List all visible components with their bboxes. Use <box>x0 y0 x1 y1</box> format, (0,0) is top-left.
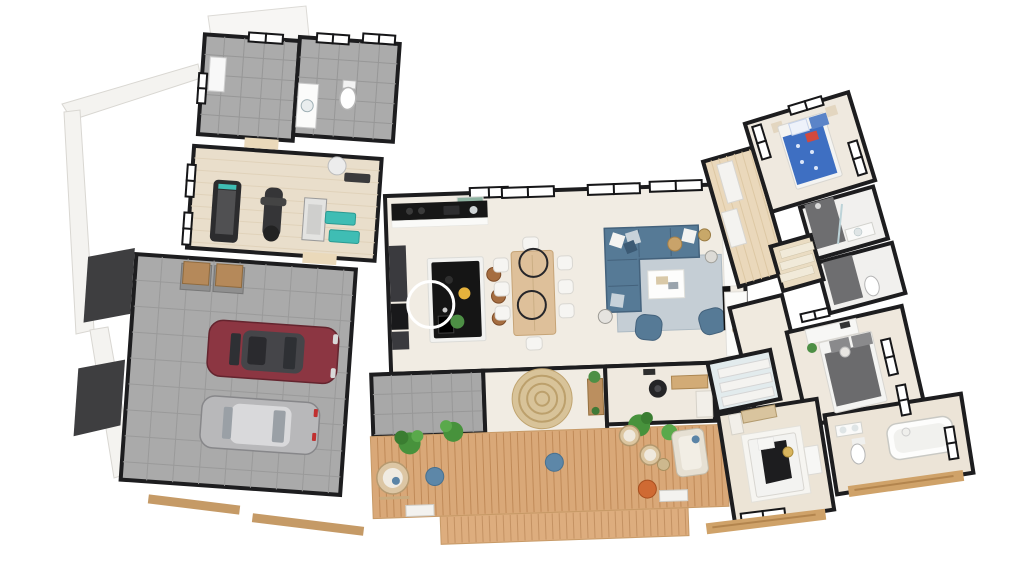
step-bench-1 <box>325 211 356 225</box>
silver-car-taillight-2 <box>312 433 317 441</box>
bath-sink-1 <box>840 427 847 434</box>
gym-window-1-mullion <box>186 180 196 181</box>
planter-box-1 <box>406 505 434 517</box>
gym-bench <box>344 172 371 183</box>
office-desk <box>671 375 707 389</box>
bed1-dot-1 <box>796 144 800 148</box>
cable-rack-pad <box>306 204 322 235</box>
garage-cabinet-1 <box>182 261 209 285</box>
bath-window-top-1-mullion <box>333 33 334 44</box>
hanging-chair-stand <box>380 497 410 498</box>
mudroom-floor <box>371 371 485 437</box>
sink-top <box>301 99 314 112</box>
red-suv-headlight-1 <box>333 334 339 344</box>
planter-box-2 <box>659 490 687 502</box>
bed2-pendant-light <box>840 347 850 357</box>
garage-door-1 <box>84 245 135 326</box>
dining-chair-6 <box>559 304 574 319</box>
side-table-2 <box>705 251 717 263</box>
bed3-pillow <box>757 437 775 450</box>
dining-chair-head-2 <box>526 337 542 351</box>
bed3-pendant-light <box>783 447 793 457</box>
step-bench-2 <box>329 230 360 244</box>
floor-lamp <box>698 229 710 241</box>
armchair-1 <box>634 314 662 342</box>
dining-chair-5 <box>558 280 573 295</box>
dining-chair-3 <box>495 306 510 321</box>
decor-basket <box>668 237 682 251</box>
bed1-dot-4 <box>814 166 818 170</box>
floor-plan-canvas <box>0 0 1024 576</box>
fridge-tall-unit <box>389 245 408 302</box>
oven-stack <box>391 303 409 330</box>
shower1-sink <box>854 228 862 236</box>
treadmill-belt <box>215 190 236 235</box>
bedroom2-plant <box>807 343 817 353</box>
dining-chair-1 <box>493 258 508 273</box>
center-block <box>362 178 755 547</box>
silver-car-windshield <box>272 410 286 443</box>
patio-side-table <box>657 458 669 470</box>
pantry-unit <box>392 331 410 350</box>
red-suv-sunroof <box>247 336 267 365</box>
laundry-boiler <box>208 57 226 92</box>
coffee-table-books <box>656 276 668 284</box>
coffee-table-tray <box>668 282 678 289</box>
office-decor <box>643 369 655 375</box>
living-window-2 <box>587 182 641 196</box>
floor-plan-3d-render <box>0 0 1024 576</box>
cooktop <box>443 205 459 215</box>
laundry-window-left-mullion <box>197 88 207 89</box>
orange-pouf <box>638 480 657 499</box>
shower1-head <box>815 203 821 209</box>
bath-sink-2 <box>852 425 859 432</box>
dining-chair-2 <box>494 282 509 297</box>
gym-window-2-mullion <box>182 228 192 229</box>
red-suv-windshield <box>283 337 297 370</box>
mudroom <box>371 371 485 437</box>
deck-pouf-blue-2 <box>545 453 564 472</box>
side-table-1 <box>598 309 612 323</box>
laundry-window-top-mullion <box>265 33 266 44</box>
dining-chair-4 <box>557 256 572 271</box>
bed1-dot-3 <box>800 160 804 164</box>
garage-cabinet-2 <box>215 264 242 288</box>
deck-pouf-blue-1 <box>425 467 444 486</box>
bath-pendant <box>902 428 910 436</box>
silver-car-taillight-1 <box>313 409 318 417</box>
bath-window-top-2-mullion <box>379 34 380 45</box>
living-window-3 <box>649 179 703 193</box>
living-window-1 <box>501 185 555 199</box>
red-suv-headlight-2 <box>330 368 336 378</box>
bed1-dot-2 <box>810 150 814 154</box>
office-shelf <box>696 391 713 418</box>
sofa-pillow-4 <box>610 293 625 308</box>
